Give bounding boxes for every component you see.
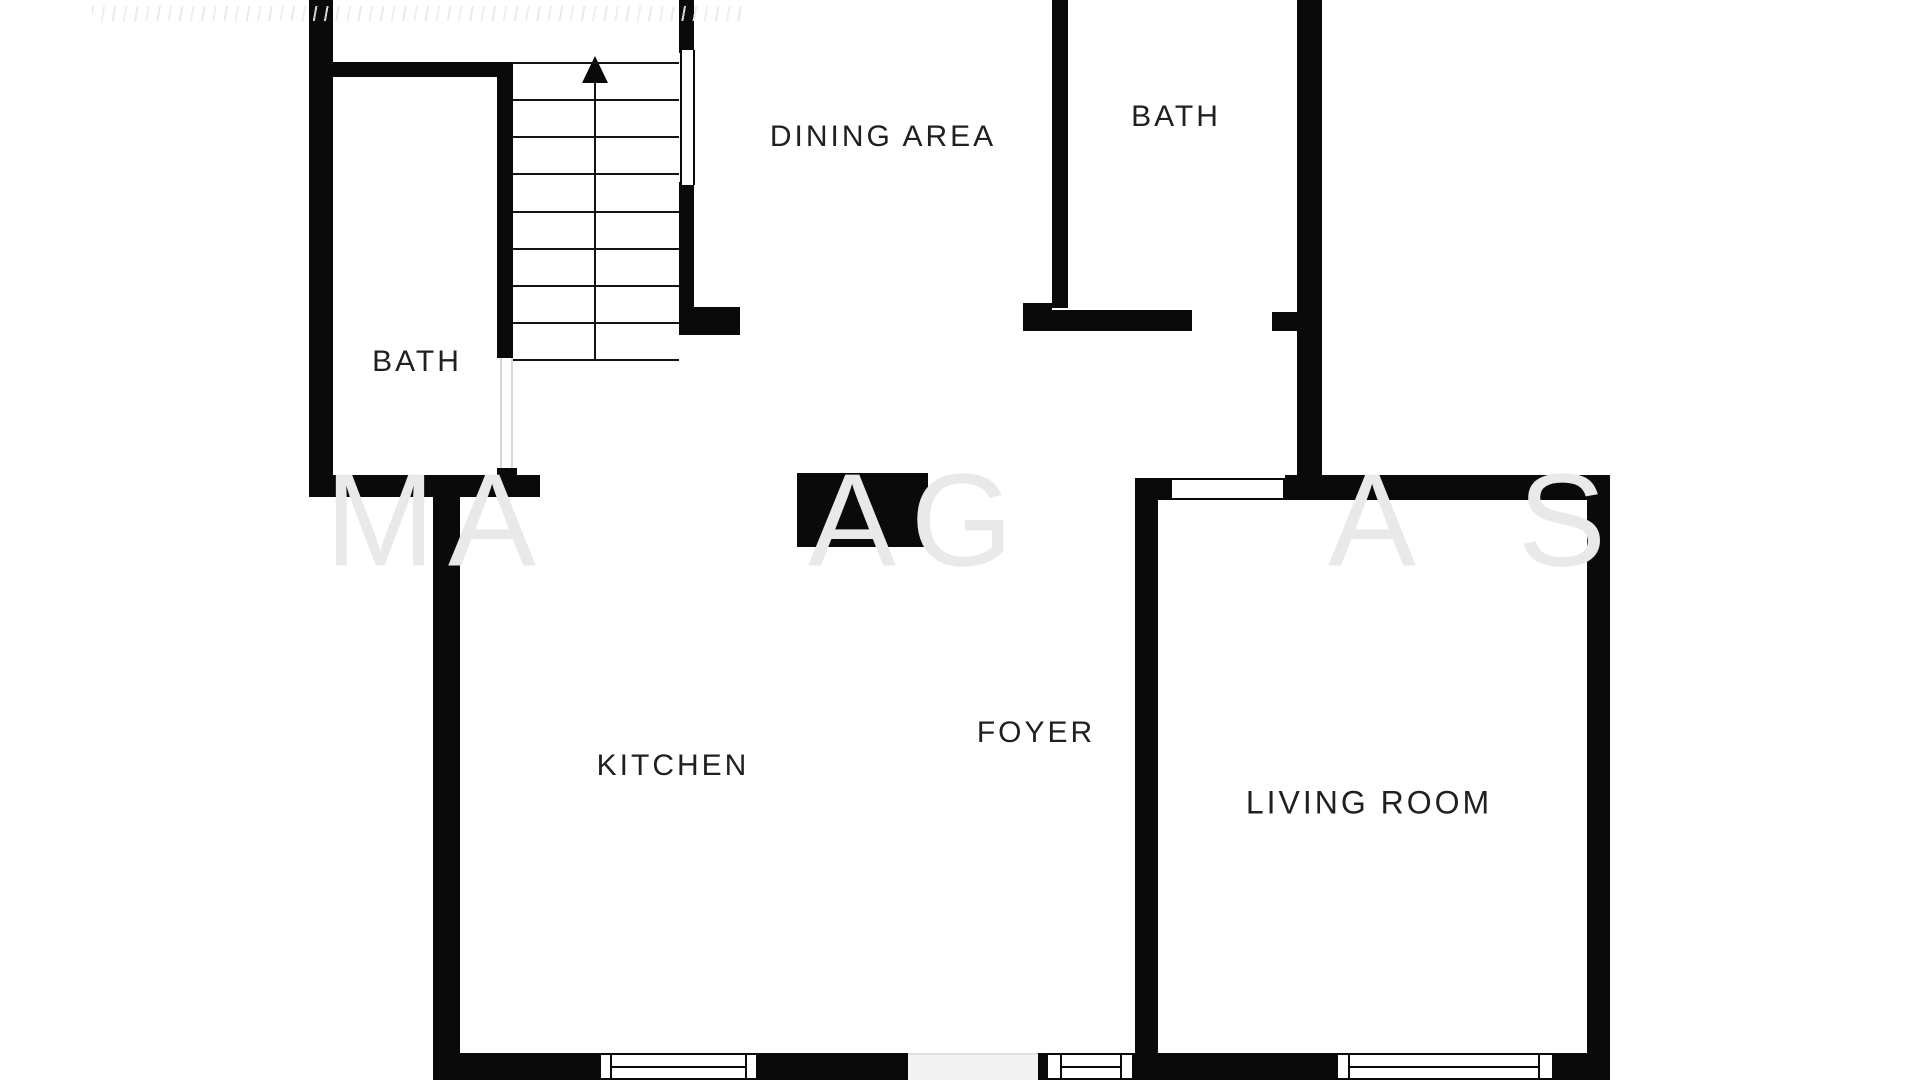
wall-bath-right [1297, 0, 1322, 477]
staircase [513, 62, 679, 359]
under-stair-opening-line [511, 358, 513, 468]
faint-artifact-marks [92, 6, 742, 21]
wall-bath-door-stub [1272, 312, 1297, 331]
room-label-dining-area: DINING AREA [770, 120, 996, 154]
stair-tread-line [513, 99, 679, 101]
wall-dining-bath-divider [1052, 0, 1068, 308]
watermark-letter: G [911, 445, 1014, 596]
wall-bottom-kitchen-a [433, 1053, 601, 1080]
room-label-foyer: FOYER [977, 716, 1095, 750]
room-label-bath-left: BATH [372, 345, 462, 379]
wall-topleft-horizontal [333, 62, 513, 77]
stair-tread-line [513, 359, 679, 361]
room-label-bath-upper: BATH [1131, 100, 1221, 134]
wall-bottom-living-b [1552, 1053, 1610, 1080]
stair-tread-line [513, 136, 679, 138]
room-label-kitchen: KITCHEN [597, 749, 750, 783]
bottom-window-kitchen [601, 1053, 756, 1080]
stair-run-line [594, 80, 596, 359]
wall-foyer-left-stub [694, 307, 740, 335]
watermark-letter: A [448, 445, 536, 596]
wall-foyer-living-divider [1135, 478, 1158, 1080]
stairs-up-arrow-icon [582, 56, 608, 83]
wall-bath-bottom [1052, 310, 1192, 331]
stair-tread-line [513, 322, 679, 324]
watermark-letter: A [808, 445, 896, 596]
bottom-window-living [1338, 1053, 1552, 1080]
watermark-letter: A [1328, 445, 1416, 596]
bottom-window-foyer [1048, 1053, 1132, 1080]
wall-bottom-living-a [1132, 1053, 1338, 1080]
wall-bath-corner-stub [1023, 303, 1052, 331]
bottom-opening-foyer [908, 1053, 1038, 1080]
wall-left-outer [309, 0, 333, 497]
living-top-window [1170, 478, 1285, 500]
wall-stair-right-mid [679, 182, 694, 335]
wall-bottom-jamb [1038, 1053, 1048, 1080]
stair-tread-line [513, 285, 679, 287]
stair-wall-window [680, 50, 695, 185]
floor-plan: M A A G A S [0, 0, 1920, 1080]
wall-bottom-kitchen-b [756, 1053, 908, 1080]
watermark-letter: M [325, 445, 435, 596]
wall-stair-left [497, 62, 513, 358]
room-label-living-room: LIVING ROOM [1246, 785, 1492, 822]
stair-tread-line [513, 173, 679, 175]
watermark-letter: S [1518, 445, 1606, 596]
stair-tread-line [513, 62, 679, 64]
under-stair-opening-line [500, 358, 502, 468]
stair-tread-line [513, 211, 679, 213]
stair-tread-line [513, 248, 679, 250]
